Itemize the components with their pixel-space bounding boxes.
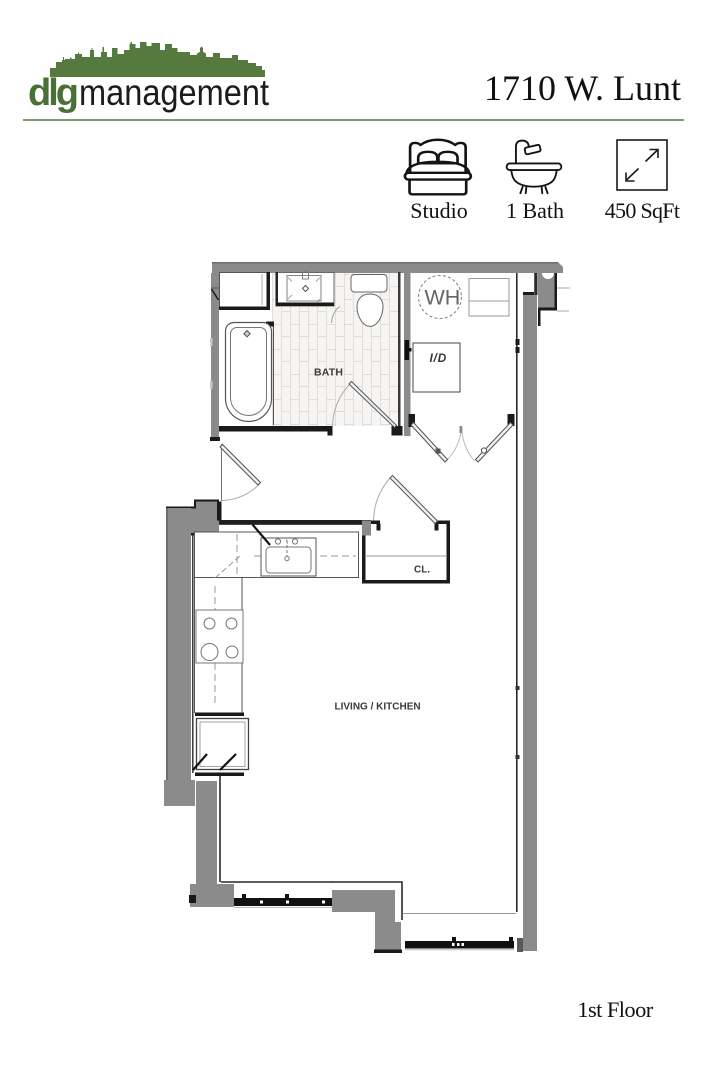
svg-text:CL.: CL. — [414, 565, 430, 576]
svg-text:I/D: I/D — [430, 351, 447, 365]
svg-text:LIVING / KITCHEN: LIVING / KITCHEN — [335, 702, 421, 713]
svg-text:BATH: BATH — [314, 367, 343, 379]
svg-text:WH: WH — [425, 286, 461, 310]
